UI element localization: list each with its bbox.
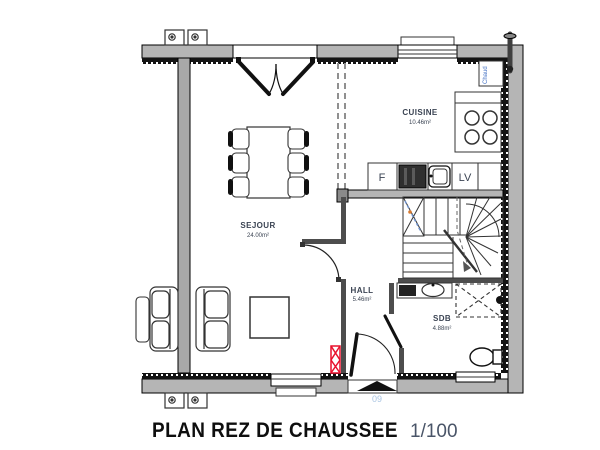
plan-scale: 1/100 bbox=[410, 421, 458, 442]
entrance-door bbox=[348, 334, 397, 394]
chair-icon bbox=[228, 177, 249, 197]
floor-plan-page: Chaud bbox=[0, 0, 600, 450]
sink-icon bbox=[399, 165, 450, 188]
dishwasher-icon: LV bbox=[459, 172, 472, 184]
floor-plan-drawing: Chaud bbox=[0, 0, 600, 450]
hall-wall-stub bbox=[302, 239, 346, 244]
door-number: 09 bbox=[372, 394, 382, 404]
counter-segment bbox=[455, 92, 501, 103]
chair-icon bbox=[288, 177, 309, 197]
party-wall bbox=[178, 58, 190, 373]
window-sill bbox=[401, 37, 454, 45]
sofa-icon bbox=[196, 287, 230, 351]
washbasin-icon bbox=[397, 283, 452, 298]
sofa-icon bbox=[150, 287, 178, 351]
hall-wall-upper bbox=[341, 197, 346, 240]
room-area-sejour: 24.00m² bbox=[247, 233, 269, 239]
radiator-icon bbox=[331, 346, 340, 373]
room-label-sdb: SDB bbox=[433, 314, 451, 323]
room-area-cuisine: 10.46m² bbox=[409, 120, 431, 126]
bathroom-fixtures bbox=[397, 283, 504, 366]
room-area-hall: 5.46m² bbox=[353, 297, 372, 303]
room-label-cuisine: CUISINE bbox=[402, 108, 438, 117]
vent-icon bbox=[165, 393, 184, 408]
kitchen-window bbox=[398, 37, 457, 58]
sdb-door-leaf bbox=[385, 316, 401, 347]
wall-top bbox=[142, 45, 523, 58]
plan-title-block: PLAN REZ DE CHAUSSEE 1/100 bbox=[152, 419, 458, 442]
armchair-icon bbox=[136, 297, 149, 342]
stairs-icon bbox=[403, 197, 503, 278]
chair-icon bbox=[288, 153, 309, 173]
plan-title: PLAN REZ DE CHAUSSEE bbox=[152, 419, 398, 442]
stove-icon bbox=[455, 103, 501, 152]
stair-sdb-wall bbox=[398, 278, 503, 283]
sdb-window bbox=[456, 372, 495, 382]
shower-icon bbox=[456, 284, 504, 317]
french-door-icon bbox=[239, 62, 313, 94]
coffee-table-icon bbox=[250, 297, 289, 338]
sdb-wall-lower bbox=[399, 348, 404, 373]
door-swing-icon bbox=[351, 334, 395, 375]
room-label-hall: HALL bbox=[351, 286, 374, 295]
toilet-icon bbox=[470, 348, 502, 366]
vent-icon bbox=[165, 30, 184, 45]
sdb-wall-upper bbox=[389, 283, 394, 314]
chair-icon bbox=[288, 129, 309, 149]
vent-icon bbox=[188, 30, 207, 45]
hall-wall-lower bbox=[341, 279, 346, 373]
window-sill bbox=[276, 388, 316, 396]
kitchen-counter: F LV bbox=[368, 92, 501, 190]
room-label-sejour: SEJOUR bbox=[240, 221, 275, 230]
dishwasher-label: LV bbox=[459, 172, 472, 184]
door-swing-icon bbox=[303, 245, 339, 281]
dining-table-icon bbox=[228, 127, 309, 198]
chair-icon bbox=[228, 129, 249, 149]
vent-icon bbox=[188, 393, 207, 408]
sejour-window bbox=[271, 374, 321, 396]
staircase bbox=[403, 197, 503, 278]
fridge-label: F bbox=[379, 172, 386, 184]
boiler-label: Chaud bbox=[483, 66, 489, 84]
ceiling-beam-dashed bbox=[338, 63, 345, 190]
chair-icon bbox=[228, 153, 249, 173]
sejour-furniture bbox=[136, 127, 340, 373]
fridge-icon: F bbox=[379, 172, 386, 184]
sejour-hall-door bbox=[300, 242, 341, 282]
french-door bbox=[233, 45, 317, 94]
wall-right bbox=[508, 45, 523, 393]
room-area-sdb: 4.88m² bbox=[433, 326, 452, 332]
